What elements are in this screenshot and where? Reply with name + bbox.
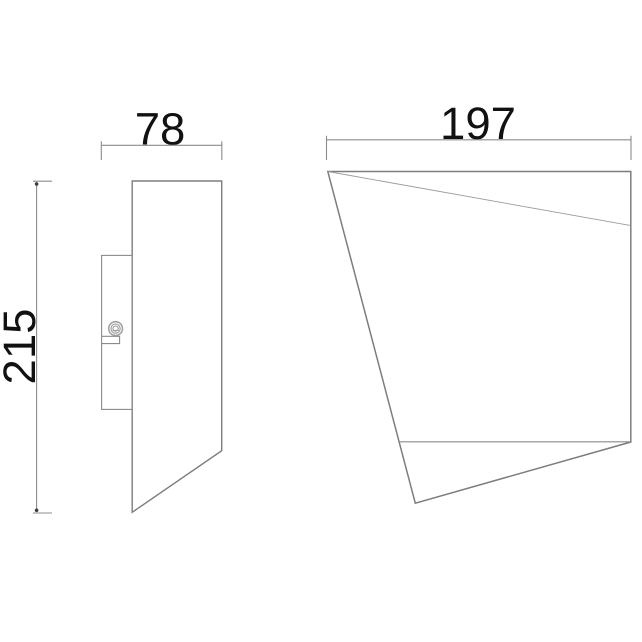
svg-text:78: 78 [135,104,186,155]
svg-text:197: 197 [440,98,516,149]
svg-text:215: 215 [0,309,45,385]
